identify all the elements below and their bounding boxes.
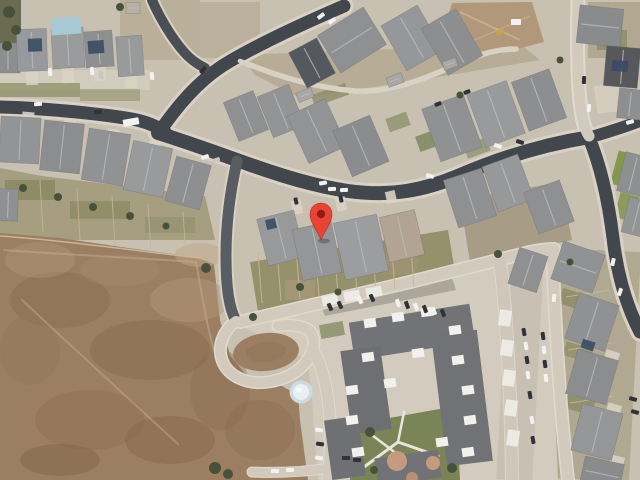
tree [296, 283, 304, 291]
car [511, 19, 521, 25]
tree [201, 263, 211, 273]
tree [387, 451, 407, 471]
tree [89, 203, 97, 211]
car [587, 104, 592, 112]
apartment-building-part [361, 352, 374, 363]
tree [426, 456, 440, 470]
apartment-building-part [461, 385, 474, 396]
apartment-building-part [345, 415, 358, 426]
apartment-building-part [461, 447, 474, 458]
tree [116, 3, 124, 11]
yard-patch [145, 217, 195, 233]
tree [567, 259, 574, 266]
water-feature [50, 16, 81, 35]
tree [457, 92, 464, 99]
apartment-building-part [363, 318, 376, 329]
map-viewport[interactable] [0, 0, 640, 480]
satellite-map[interactable] [0, 0, 640, 480]
dirt-field-area [150, 278, 230, 322]
yard-patch [80, 89, 140, 101]
pin-shadow [318, 239, 330, 244]
tree [3, 6, 15, 18]
car [328, 187, 336, 191]
tree [2, 41, 12, 51]
tree [19, 184, 27, 192]
tree [494, 250, 502, 258]
tree [11, 25, 21, 35]
solar-panel [612, 60, 629, 72]
car [342, 456, 350, 460]
pin-center-dot [317, 210, 325, 218]
tree [54, 193, 62, 201]
apartment-building-part [500, 339, 514, 357]
apartment-building-part [391, 312, 404, 323]
apartment-building-part [435, 437, 448, 448]
car [99, 71, 104, 79]
dirt-field-area [125, 416, 215, 464]
apartment-building-part [383, 378, 396, 389]
solar-panel [28, 38, 42, 51]
car [340, 188, 348, 192]
car [34, 102, 42, 107]
car [150, 72, 155, 80]
dirt-field-area [225, 400, 295, 460]
tree [249, 313, 257, 321]
water-feature [296, 387, 302, 393]
car [353, 458, 361, 462]
dirt-field-area [5, 242, 75, 278]
tree [370, 466, 378, 474]
car [286, 468, 294, 472]
apartment-building-part [351, 447, 364, 458]
apartment-building-part [504, 399, 518, 417]
tree [209, 462, 221, 474]
apartment-building-part [502, 369, 516, 387]
tree [365, 427, 375, 437]
tree [557, 57, 564, 64]
tree [163, 223, 170, 230]
driveway [62, 67, 75, 84]
yard-patch [0, 83, 80, 97]
apartment-building-part [451, 355, 464, 366]
dirt-field-area [175, 243, 225, 267]
car [90, 67, 95, 75]
tree [447, 463, 457, 473]
tree [223, 469, 233, 479]
house-roof [0, 189, 19, 222]
apartment-building-part [345, 385, 358, 396]
car [271, 469, 279, 473]
tree [126, 212, 134, 220]
car [552, 294, 557, 302]
apartment-building-part [463, 415, 476, 426]
apartment-building-part [411, 348, 424, 359]
solar-panel [88, 40, 105, 54]
car [48, 68, 53, 76]
car [582, 76, 586, 84]
dirt-field-area [0, 315, 60, 385]
dirt-field-area [20, 444, 100, 476]
apartment-building-part [448, 325, 461, 336]
dirt-field-area [90, 320, 210, 380]
apartment-building-part [498, 309, 512, 327]
tree [335, 289, 342, 296]
apartment-building-part [506, 429, 520, 447]
